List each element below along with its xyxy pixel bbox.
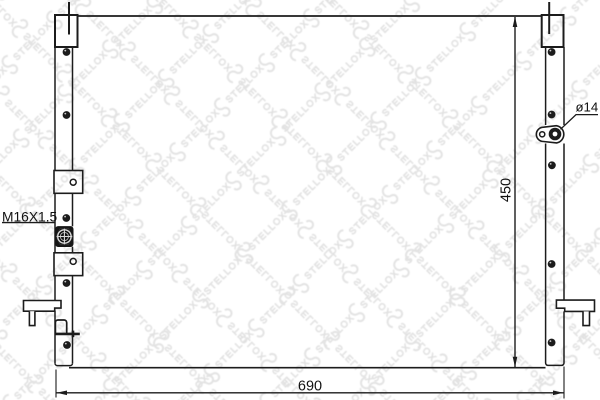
svg-text:690: 690 — [298, 379, 322, 395]
svg-text:ø14: ø14 — [576, 100, 599, 115]
svg-text:450: 450 — [499, 178, 515, 202]
